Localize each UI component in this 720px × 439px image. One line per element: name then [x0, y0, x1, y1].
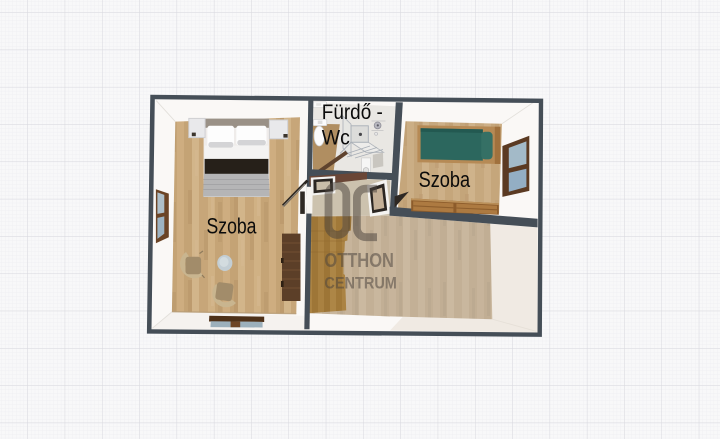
svg-text:OTTHON: OTTHON — [324, 249, 394, 272]
svg-text:Szoba: Szoba — [207, 214, 257, 239]
svg-text:Wc: Wc — [322, 125, 350, 149]
svg-text:Fürdő -: Fürdő - — [322, 100, 383, 124]
svg-text:CENTRUM: CENTRUM — [324, 274, 397, 292]
svg-text:Szoba: Szoba — [419, 167, 471, 192]
